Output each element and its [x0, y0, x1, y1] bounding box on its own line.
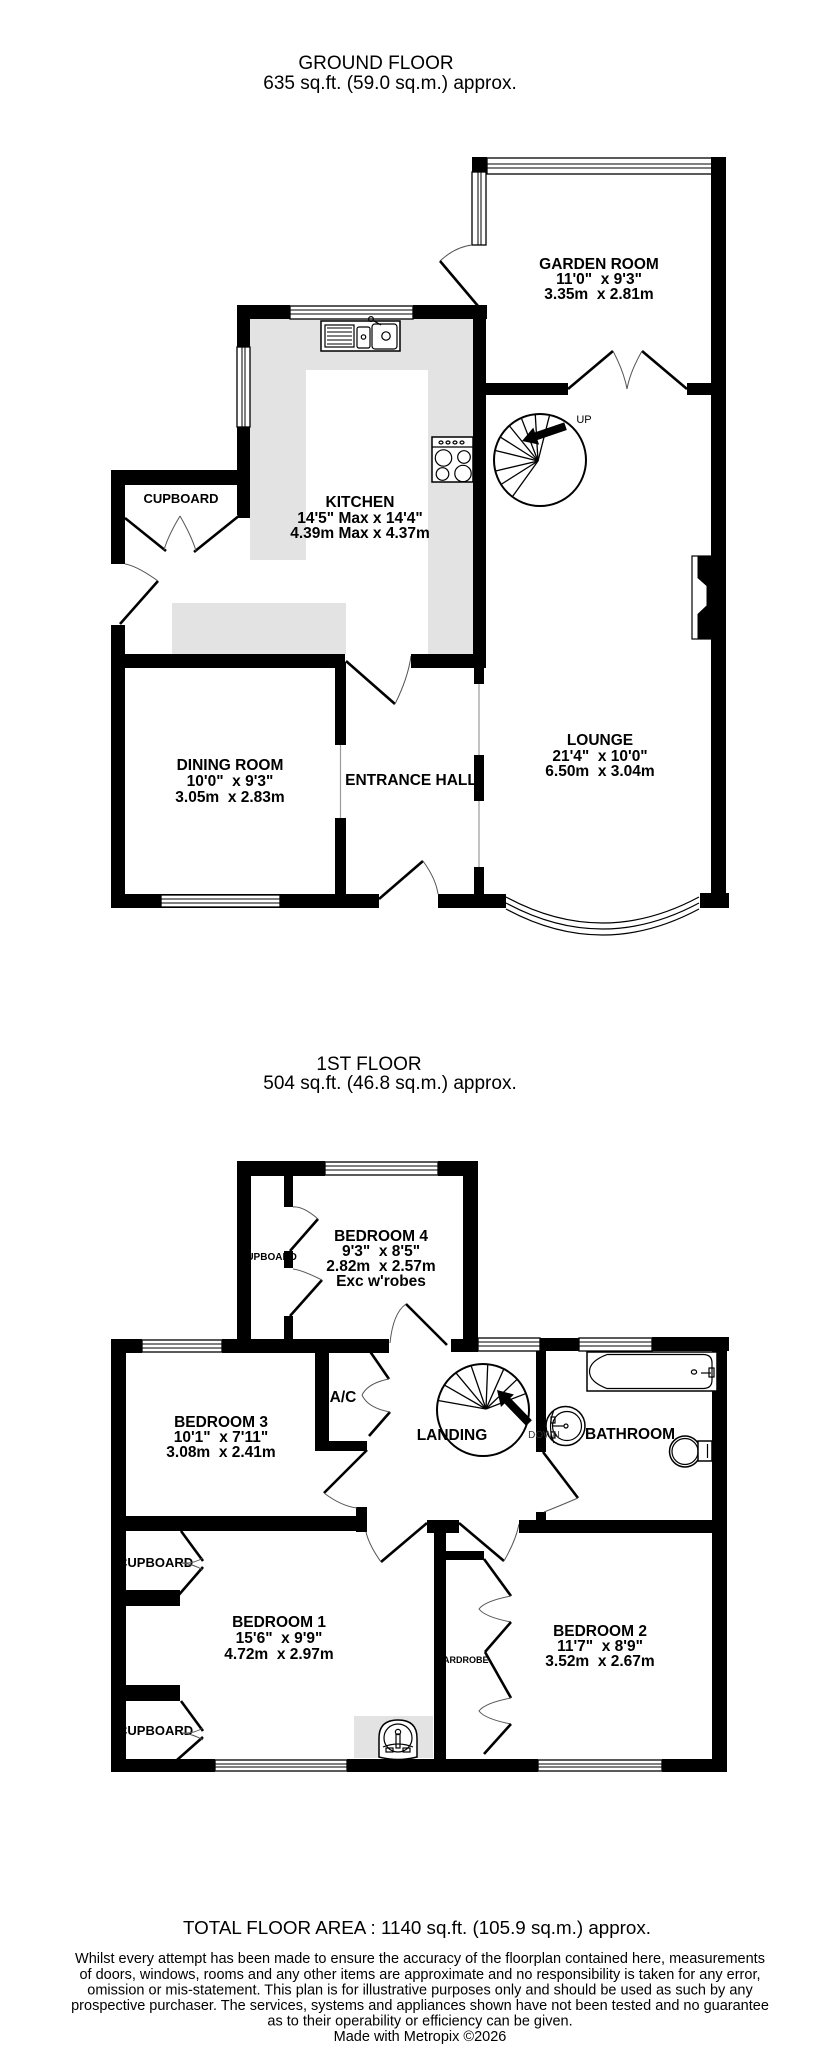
svg-text:6.50m x 3.04m: 6.50m x 3.04m: [545, 763, 654, 780]
svg-text:LANDING: LANDING: [417, 1427, 488, 1444]
svg-text:ENTRANCE HALL: ENTRANCE HALL: [345, 772, 477, 789]
svg-text:3.35m x 2.81m: 3.35m x 2.81m: [544, 286, 653, 303]
svg-text:GROUND FLOOR: GROUND FLOOR: [298, 53, 453, 74]
svg-text:3.05m x 2.83m: 3.05m x 2.83m: [175, 789, 284, 806]
svg-text:Exc w'robes: Exc w'robes: [336, 1273, 426, 1290]
svg-text:504 sq.ft. (46.8 sq.m.) approx: 504 sq.ft. (46.8 sq.m.) approx.: [263, 1073, 516, 1094]
svg-text:Whilst every attempt has been: Whilst every attempt has been made to en…: [75, 1951, 765, 1967]
svg-text:3.52m x 2.67m: 3.52m x 2.67m: [545, 1653, 654, 1670]
svg-text:CUPBOARD: CUPBOARD: [118, 1723, 193, 1738]
svg-text:Made with Metropix ©2026: Made with Metropix ©2026: [334, 2029, 507, 2045]
svg-text:A/C: A/C: [330, 1389, 357, 1406]
svg-text:15'6" x 9'9": 15'6" x 9'9": [236, 1630, 323, 1647]
svg-text:KITCHEN: KITCHEN: [326, 494, 395, 511]
svg-text:10'0" x 9'3": 10'0" x 9'3": [187, 773, 274, 790]
svg-text:DOWN: DOWN: [528, 1430, 560, 1441]
svg-text:1ST FLOOR: 1ST FLOOR: [316, 1054, 421, 1075]
svg-text:as to their operability or eff: as to their operability or efficiency ca…: [267, 2014, 572, 2030]
svg-text:LOUNGE: LOUNGE: [567, 732, 633, 749]
svg-text:BEDROOM 1: BEDROOM 1: [232, 1614, 326, 1631]
svg-text:635 sq.ft. (59.0 sq.m.) approx: 635 sq.ft. (59.0 sq.m.) approx.: [263, 73, 516, 94]
svg-text:DINING ROOM: DINING ROOM: [177, 757, 284, 774]
svg-text:TOTAL FLOOR AREA : 1140 sq.ft.: TOTAL FLOOR AREA : 1140 sq.ft. (105.9 sq…: [183, 1917, 651, 1938]
svg-text:prospective purchaser. The ser: prospective purchaser. The services, sys…: [71, 1998, 769, 2014]
svg-text:BATHROOM: BATHROOM: [585, 1426, 675, 1443]
svg-text:UP: UP: [576, 414, 591, 426]
svg-text:3.08m x 2.41m: 3.08m x 2.41m: [166, 1444, 275, 1461]
svg-text:of doors, windows, rooms and a: of doors, windows, rooms and any other i…: [79, 1967, 760, 1983]
svg-text:omission or mis-statement. Thi: omission or mis-statement. This plan is …: [87, 1983, 753, 1999]
svg-text:4.39m Max x 4.37m: 4.39m Max x 4.37m: [290, 525, 430, 542]
svg-text:CUPBOARD: CUPBOARD: [118, 1555, 193, 1570]
svg-text:CUPBOARD: CUPBOARD: [143, 491, 218, 506]
svg-text:4.72m x 2.97m: 4.72m x 2.97m: [224, 1646, 333, 1663]
